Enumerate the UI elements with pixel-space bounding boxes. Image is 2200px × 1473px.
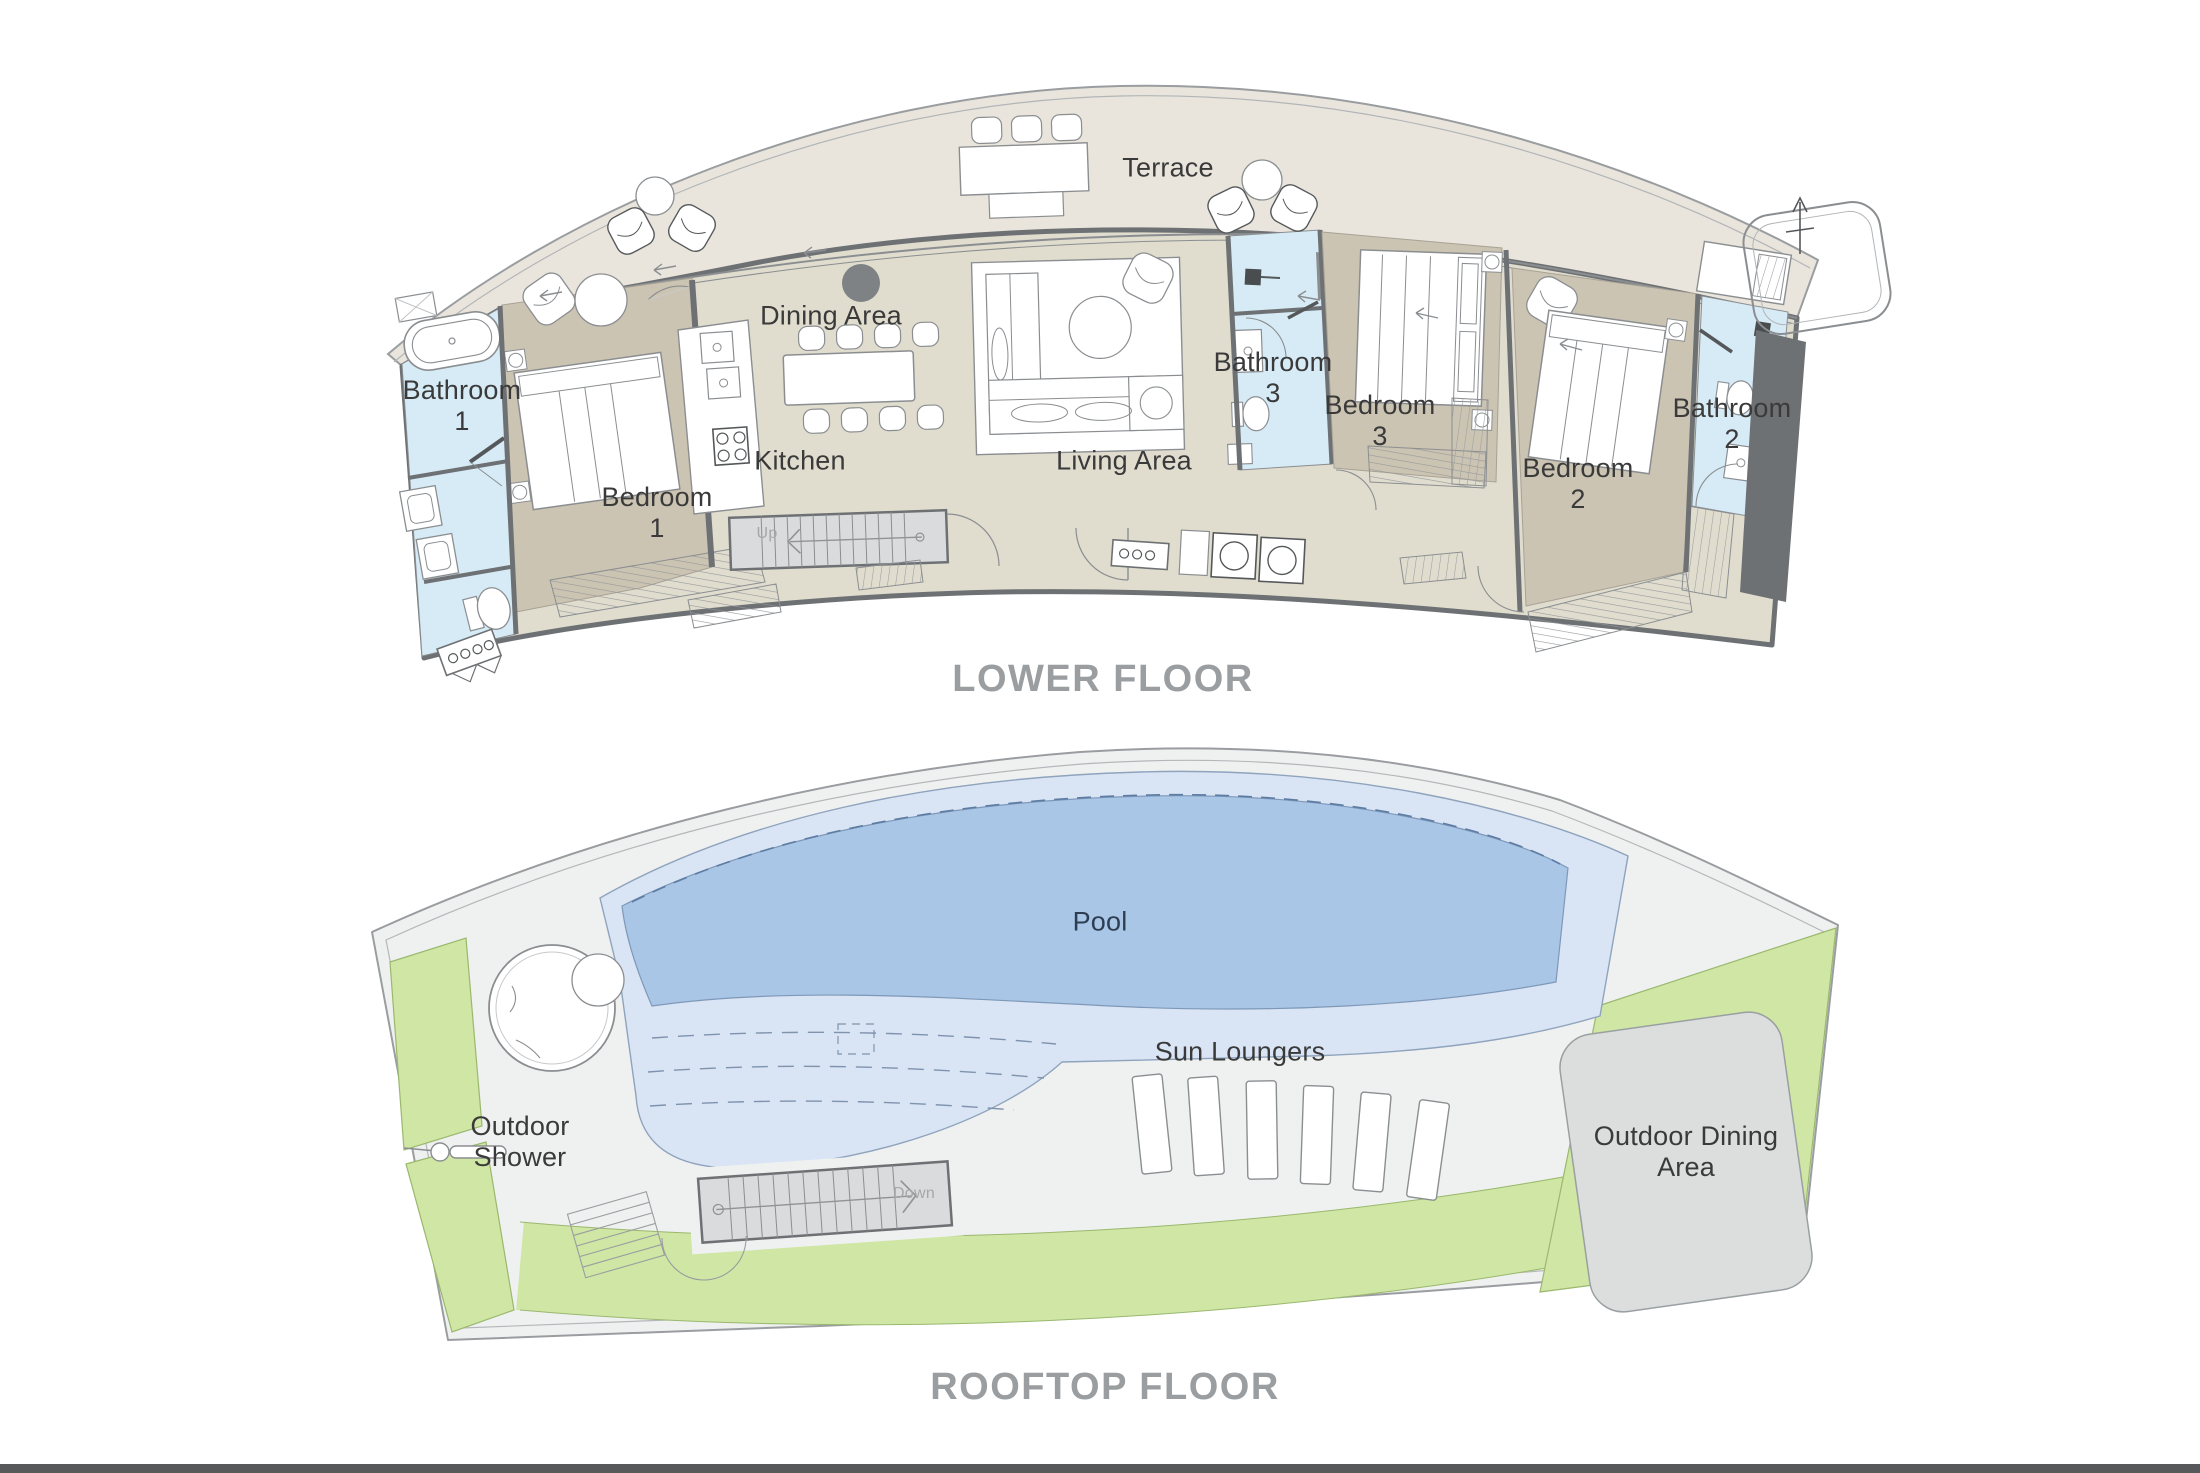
label-dining: Dining Area xyxy=(760,301,902,332)
label-stairs-down: Down xyxy=(893,1185,935,1203)
label-bedroom-2: Bedroom 2 xyxy=(1523,453,1634,515)
label-bathroom-1: Bathroom 1 xyxy=(403,375,522,437)
caption-lower-floor: LOWER FLOOR xyxy=(952,660,1253,698)
column xyxy=(842,264,880,302)
label-living: Living Area xyxy=(1056,446,1192,477)
label-sun-loungers: Sun Loungers xyxy=(1155,1037,1326,1068)
bathroom-1-area xyxy=(395,292,516,656)
living-area-furniture xyxy=(971,248,1184,455)
rooftop-floor-plan xyxy=(372,748,1838,1340)
label-outdoor-shower: Outdoor Shower xyxy=(471,1111,570,1173)
label-bathroom-2: Bathroom 2 xyxy=(1673,393,1792,455)
label-kitchen: Kitchen xyxy=(754,446,845,477)
vent xyxy=(1400,552,1466,584)
label-outdoor-dining: Outdoor Dining Area xyxy=(1594,1121,1778,1183)
label-bedroom-1: Bedroom 1 xyxy=(602,482,713,544)
bedroom-3-area xyxy=(1322,232,1502,510)
label-stairs-up: Up xyxy=(756,525,777,543)
floor-plan-canvas: Terrace Dining Area Kitchen Living Area … xyxy=(0,0,2200,1473)
label-bathroom-3: Bathroom 3 xyxy=(1214,347,1333,409)
footer-bar xyxy=(0,1464,2200,1473)
floor-plan-drawing xyxy=(0,0,2200,1473)
washer-dryer xyxy=(1179,530,1305,583)
label-terrace: Terrace xyxy=(1122,153,1213,184)
ac-unit xyxy=(1111,540,1169,570)
label-bedroom-3: Bedroom 3 xyxy=(1325,390,1436,452)
label-pool: Pool xyxy=(1073,907,1128,938)
caption-rooftop-floor: ROOFTOP FLOOR xyxy=(930,1368,1280,1406)
